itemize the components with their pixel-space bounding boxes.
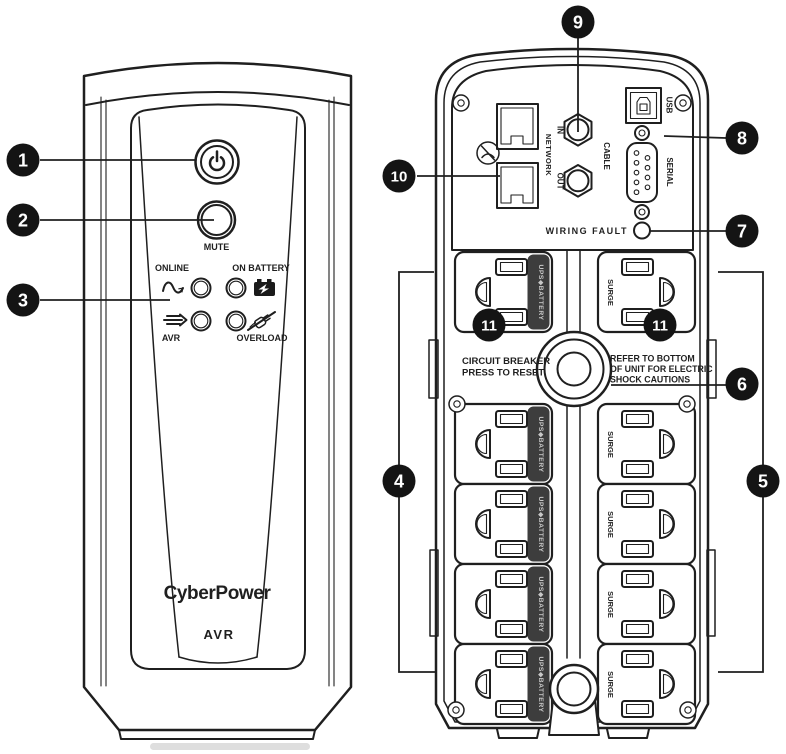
front-view: MUTE ONLINE ON BATTERY AVR OVERLOAD <box>84 63 351 750</box>
network-in-port <box>497 104 538 149</box>
svg-text:3: 3 <box>18 291 28 311</box>
battery-outlet <box>455 644 552 724</box>
screw <box>680 702 696 718</box>
surge-outlet <box>598 404 695 484</box>
ups-front-back-diagram: UPS◆BATTERY SURGE <box>0 0 786 754</box>
usb-port <box>626 88 661 123</box>
svg-text:5: 5 <box>758 472 768 492</box>
screw <box>679 396 695 412</box>
overload-label: OVERLOAD <box>236 333 288 343</box>
screw <box>448 702 464 718</box>
callout-6: 6 <box>726 368 759 401</box>
svg-text:7: 7 <box>737 222 747 242</box>
overload-plug-icon <box>248 312 275 330</box>
network-label: NETWORK <box>544 134 553 176</box>
avr-boost-icon <box>164 315 187 326</box>
callout-5: 5 <box>747 465 780 498</box>
svg-text:11: 11 <box>652 318 668 335</box>
network-out-port <box>497 163 538 208</box>
callout-8: 8 <box>726 122 759 155</box>
callout-11-battery: 11 <box>473 309 506 342</box>
battery-icon <box>254 279 275 296</box>
callout-2: 2 <box>7 204 40 237</box>
callout-4: 4 <box>383 465 416 498</box>
circuit-breaker <box>537 332 611 406</box>
svg-text:2: 2 <box>18 211 28 231</box>
serial-port <box>627 126 657 219</box>
avr-led <box>192 312 211 331</box>
callout-1: 1 <box>7 144 40 177</box>
callout-11-surge: 11 <box>644 309 677 342</box>
online-led <box>192 279 211 298</box>
circuit-breaker-label-line1: CIRCUIT BREAKER <box>462 356 550 367</box>
on-battery-led <box>227 279 246 298</box>
callout-10: 10 <box>383 160 416 193</box>
battery-outlet <box>455 564 552 644</box>
callout-9: 9 <box>562 6 595 39</box>
on-battery-label: ON BATTERY <box>232 263 290 273</box>
overload-led <box>227 312 246 331</box>
svg-text:8: 8 <box>737 129 747 149</box>
power-button <box>196 141 239 184</box>
avr-label: AVR <box>162 333 181 343</box>
cable-out-connector <box>565 165 592 197</box>
battery-outlet <box>455 404 552 484</box>
sine-wave-icon <box>163 282 183 292</box>
back-view: NETWORK IN OUT CABLE USB <box>429 49 716 738</box>
in-label: IN <box>556 126 565 134</box>
surge-outlet <box>598 564 695 644</box>
no-phone-icon <box>477 142 499 164</box>
power-icon <box>210 152 224 171</box>
screw <box>449 396 465 412</box>
power-cord-strain-relief <box>549 665 599 735</box>
svg-text:10: 10 <box>391 169 408 186</box>
front-shadow <box>150 743 310 750</box>
wiring-fault-label: WIRING FAULT <box>546 226 628 236</box>
surge-outlet <box>598 484 695 564</box>
circuit-breaker-label-line2: PRESS TO RESET <box>462 368 544 379</box>
svg-text:1: 1 <box>18 151 28 171</box>
online-label: ONLINE <box>155 263 189 273</box>
svg-text:11: 11 <box>481 318 497 335</box>
caution-label-line2: OF UNIT FOR ELECTRIC <box>610 364 713 374</box>
svg-text:9: 9 <box>573 13 583 33</box>
wiring-fault-led <box>634 223 650 239</box>
out-label: OUT <box>556 173 565 190</box>
foot <box>607 729 649 738</box>
svg-text:4: 4 <box>394 472 404 492</box>
mute-label: MUTE <box>204 242 230 252</box>
usb-label: USB <box>665 97 674 114</box>
screw <box>453 95 469 111</box>
status-indicators: ONLINE ON BATTERY AVR OVERLOAD <box>155 263 290 343</box>
callout-3: 3 <box>7 284 40 317</box>
model-label: AVR <box>204 627 235 642</box>
cable-label: CABLE <box>602 142 611 170</box>
caution-label-line3: SHOCK CAUTIONS <box>610 375 690 385</box>
brand-logo: CyberPower <box>164 583 272 604</box>
screw <box>675 95 691 111</box>
battery-outlet <box>455 484 552 564</box>
svg-text:6: 6 <box>737 375 747 395</box>
serial-label: SERIAL <box>665 157 674 186</box>
callout-7: 7 <box>726 215 759 248</box>
caution-label-line1: REFER TO BOTTOM <box>610 354 695 364</box>
foot <box>497 729 539 738</box>
